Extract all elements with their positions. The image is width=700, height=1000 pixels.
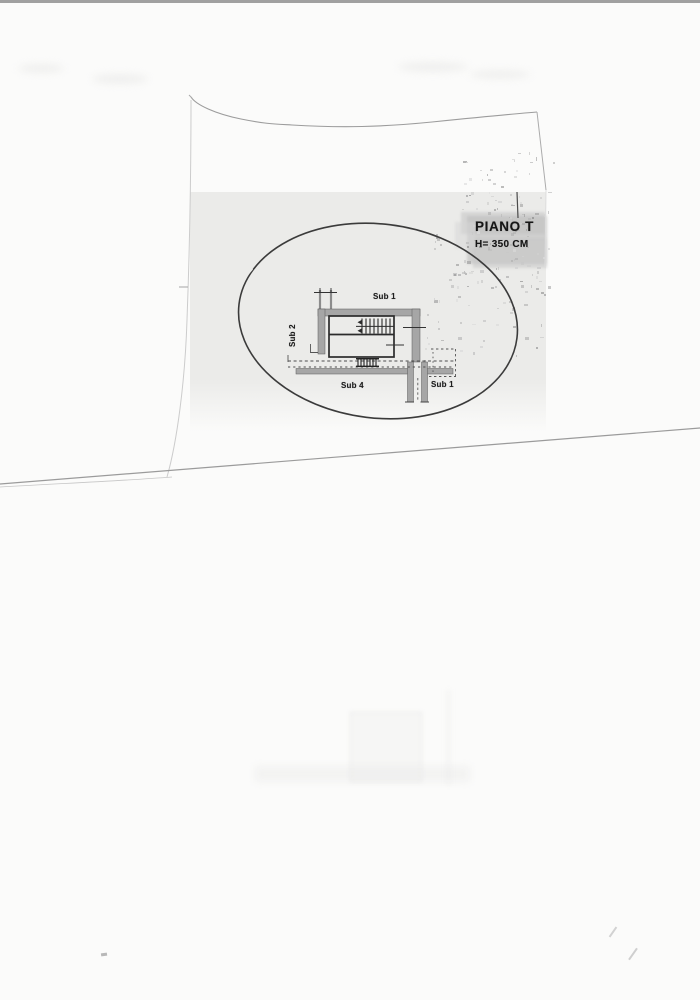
stair-direction-arrow — [358, 328, 363, 333]
room-label-sub1-upper: Sub 1 — [373, 292, 396, 301]
room-label-sub1-lower: Sub 1 — [431, 380, 454, 389]
plan-stub — [314, 288, 337, 310]
ellipse-stroke-gap — [239, 264, 253, 278]
hatched-opening — [356, 359, 379, 367]
plan-header: PIANO T H= 350 CM — [475, 219, 546, 250]
lower-sheet-edge — [0, 428, 700, 487]
inner-sheet-edges — [167, 95, 546, 477]
sheet-left-edge — [167, 100, 191, 477]
sheet-top-edge — [191, 97, 537, 127]
stair-direction-arrow — [358, 320, 363, 325]
corridor-right-wall — [422, 362, 428, 402]
room-label-sub4: Sub 4 — [341, 381, 364, 390]
staircase — [356, 319, 394, 334]
ceiling-height-note: H= 350 CM — [475, 239, 546, 250]
corridor-left-wall — [408, 362, 414, 402]
room-label-sub2: Sub 2 — [288, 324, 297, 347]
wall-foot — [311, 344, 319, 353]
scan-artwork — [0, 0, 700, 1000]
floor-title: PIANO T — [475, 219, 546, 234]
toner-streak — [517, 192, 518, 218]
sheet-right-edge — [537, 112, 546, 190]
